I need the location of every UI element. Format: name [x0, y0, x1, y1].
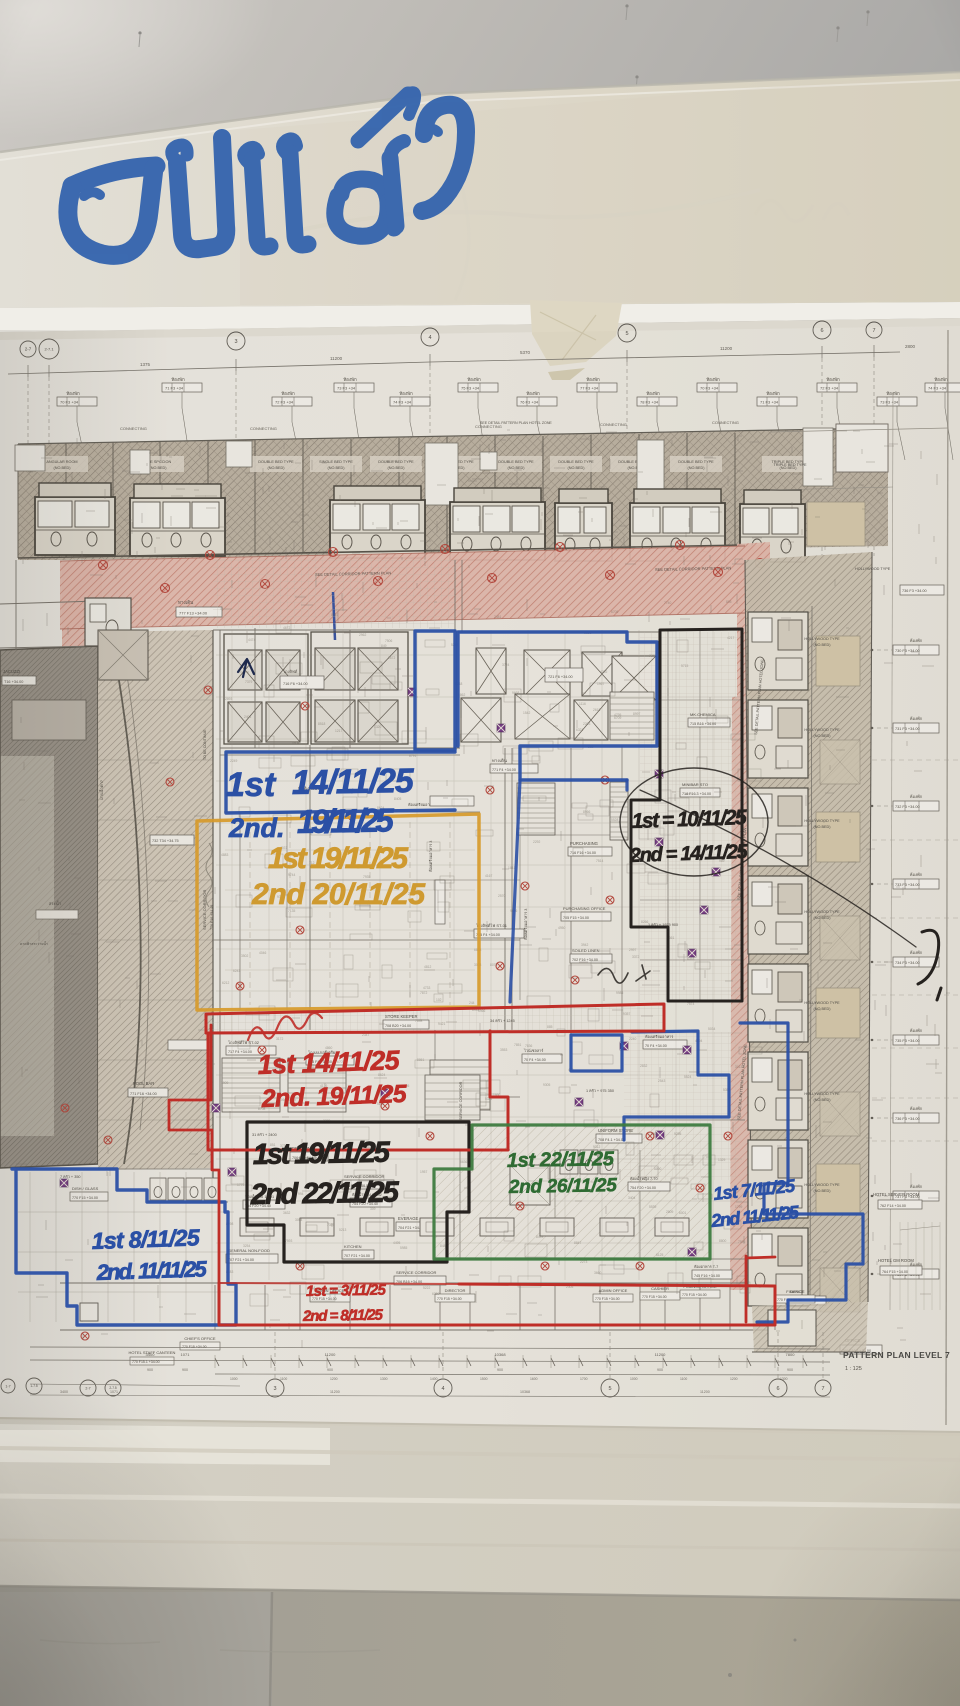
- svg-text:1st = 10/11/25: 1st = 10/11/25: [631, 806, 747, 833]
- svg-text:2nd 20/11/25: 2nd 20/11/25: [251, 878, 426, 911]
- svg-text:1st 19/11/25: 1st 19/11/25: [268, 842, 409, 875]
- svg-text:1st 14/11/25: 1st 14/11/25: [257, 1045, 401, 1080]
- svg-text:19/11/25: 19/11/25: [296, 801, 394, 840]
- svg-text:2nd 26/11/25: 2nd 26/11/25: [508, 1175, 618, 1198]
- svg-text:1st 22/11/25: 1st 22/11/25: [507, 1148, 615, 1172]
- svg-text:14/11/25: 14/11/25: [291, 762, 415, 802]
- svg-text:1st: 1st: [226, 766, 277, 804]
- svg-text:2nd = 14/11/25: 2nd = 14/11/25: [628, 841, 749, 867]
- svg-text:2nd.: 2nd.: [228, 813, 285, 843]
